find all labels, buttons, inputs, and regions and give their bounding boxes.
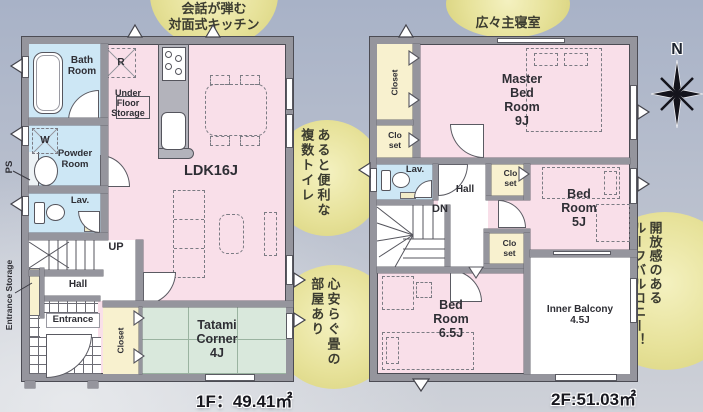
stove-burner-3 — [165, 63, 172, 70]
window — [22, 196, 29, 216]
floor-plan-canvas: 会話が弾む 対面式キッチン 広々主寝室 あると便利な 複数トイレ 心安らぐ畳の … — [0, 0, 703, 412]
inner-balcony-label: Inner Balcony 4.5J — [540, 300, 620, 330]
wall — [136, 240, 143, 307]
tatami-label: Tatami Corner 4J — [172, 310, 262, 368]
toilet-tank-2f — [381, 170, 391, 191]
callout-tatami-text: 心安らぐ畳の 部屋あり — [308, 277, 341, 379]
window — [630, 168, 637, 204]
up-label: UP — [102, 241, 130, 253]
window — [497, 38, 565, 43]
powder-room-label: Powder Room — [50, 148, 100, 172]
window — [555, 374, 617, 381]
vent-marker-up — [205, 24, 221, 38]
window — [286, 255, 293, 285]
callout-tatami-line1: 心安らぐ畳の — [324, 277, 340, 379]
balcony-sliding-door — [553, 251, 611, 255]
north-label: N — [664, 40, 690, 60]
closet-door-triangle — [133, 310, 145, 326]
vent-marker-up — [398, 24, 414, 38]
closet-small-label-a: Clo set — [377, 126, 413, 156]
dining-chair-3 — [210, 136, 230, 146]
lav-label-1f: Lav. — [66, 196, 94, 207]
master-bedroom-label: Master Bed Room 9J — [486, 60, 558, 140]
wall — [40, 296, 100, 301]
vent-marker-down — [412, 378, 430, 392]
dining-chair-2 — [240, 75, 260, 85]
callout-toilets-text: あると便利な 複数トイレ — [298, 128, 331, 230]
vent-marker-right — [637, 176, 650, 192]
stove-burner-2 — [175, 55, 182, 62]
vent-marker-up — [127, 24, 143, 38]
entrance-storage-leader-line — [14, 280, 34, 296]
wall — [29, 233, 108, 240]
fridge-label: R — [106, 48, 136, 78]
floor1-entrance-tile-strip — [40, 301, 98, 313]
wall — [433, 164, 438, 200]
toilet-bowl-1f — [46, 204, 65, 221]
closet-label-2f: Closet — [389, 63, 402, 103]
lav-label-2f: Lav. — [400, 165, 430, 176]
master-pillow-2 — [564, 53, 588, 66]
bath-room-label: Bath Room — [60, 52, 104, 80]
dining-chair-1 — [210, 75, 230, 85]
wall — [103, 301, 293, 307]
sofa — [173, 190, 205, 278]
callout-toilets-line2: 複数トイレ — [298, 128, 314, 230]
window — [630, 85, 637, 140]
vent-marker-left — [10, 196, 23, 212]
dining-table — [205, 84, 267, 136]
dn-label: DN — [426, 203, 454, 215]
bathtub-inner — [36, 55, 60, 111]
vent-marker-right — [293, 312, 306, 328]
under-floor-storage-label: Under Floor Storage — [100, 85, 156, 121]
closet-door-triangle — [468, 266, 484, 279]
closet-small-label-b: Clo set — [491, 164, 530, 194]
closet-label-1f: Closet — [115, 321, 128, 361]
coffee-table — [219, 214, 244, 254]
window — [205, 374, 255, 381]
window — [630, 278, 637, 323]
vent-marker-right — [293, 272, 306, 288]
window — [286, 78, 293, 110]
dining-chair-4 — [240, 136, 260, 146]
closet-small-label-c: Clo set — [489, 234, 530, 263]
callout-balcony-line1: 開放感のある — [646, 221, 662, 367]
floor2-area-label: 2F:51.03㎡ — [551, 385, 636, 410]
callout-toilets-line1: あると便利な — [314, 128, 330, 230]
wall — [29, 186, 108, 193]
entrance-label: Entrance — [46, 313, 100, 328]
callout-tatami-line2: 部屋あり — [308, 277, 324, 379]
vent-marker-right — [637, 104, 650, 120]
vent-marker-left — [358, 162, 371, 178]
ldk-label: LDK16J — [178, 162, 244, 180]
closet-door-triangle — [408, 50, 420, 66]
wall — [377, 120, 413, 125]
window — [22, 126, 29, 146]
hall-label-1f: Hall — [58, 278, 98, 291]
stove-burner-4 — [175, 68, 182, 75]
window — [22, 56, 29, 78]
compass-rose-icon — [652, 60, 703, 128]
floor1-area-label: 1F：49.41㎡ — [196, 387, 292, 412]
toilet-tank-1f — [34, 202, 45, 224]
bed65-desk — [382, 276, 414, 310]
kitchen-sink — [161, 112, 186, 150]
ps-label: PS — [4, 153, 16, 181]
callout-master-text: 広々主寝室 — [446, 12, 570, 31]
bedroom65-label: Bed Room 6.5J — [418, 290, 484, 348]
floor1-entrance-storage-tile — [29, 316, 40, 337]
closet-door-triangle — [408, 92, 420, 108]
stove-burner-1 — [165, 51, 172, 58]
entrance-storage-label: Entrance Storage — [4, 259, 16, 331]
hall-label-2f: Hall — [446, 183, 484, 196]
window — [286, 313, 293, 339]
vent-marker-left — [10, 126, 23, 142]
porch-step — [25, 381, 35, 388]
window — [370, 168, 377, 192]
wall — [29, 118, 108, 125]
wall — [40, 268, 44, 318]
window — [286, 114, 293, 148]
stairs-up-treads — [29, 240, 103, 270]
tv-board — [264, 212, 277, 256]
closet-door-triangle — [133, 348, 145, 364]
bedroom5-label: Bed Room 5J — [548, 180, 610, 236]
bed65-pillow — [386, 337, 399, 364]
porch-step — [88, 381, 98, 388]
vent-marker-left — [10, 58, 23, 74]
